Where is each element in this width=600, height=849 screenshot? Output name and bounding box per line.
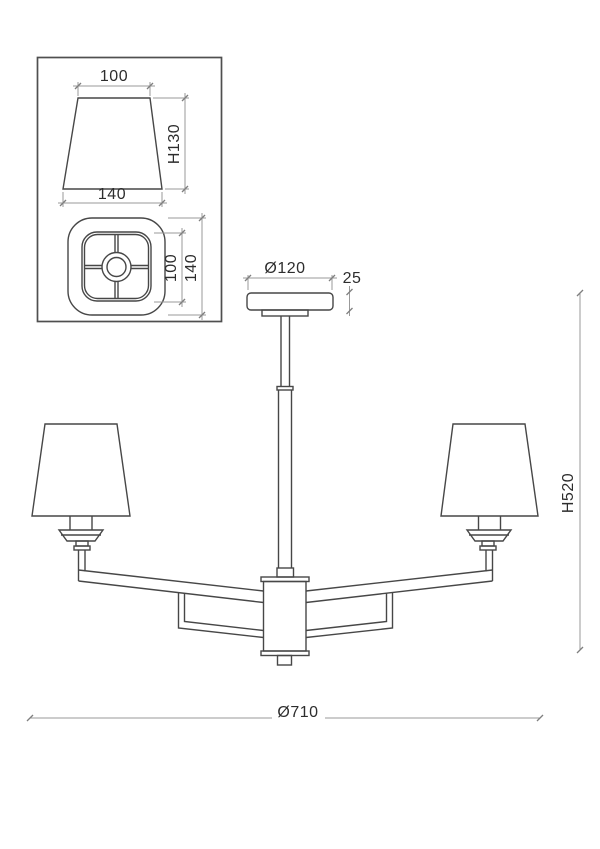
- right-arm-lower-frame-outer: [306, 593, 393, 638]
- right-neck-block: [482, 541, 494, 546]
- left-neck-block: [76, 541, 88, 546]
- stem-coupler: [277, 387, 293, 391]
- right-arm: [306, 570, 493, 638]
- right-light-fixture: [441, 424, 538, 581]
- dim-label-topview-inner: 100: [163, 254, 180, 282]
- right-arm-lower-frame-inner: [306, 594, 387, 631]
- left-shade: [32, 424, 130, 516]
- dim-label-overall-height: H520: [560, 473, 577, 513]
- shade-top-view-inner-ring-inner: [85, 235, 149, 299]
- bottom-finial: [278, 656, 292, 666]
- shade-top-view: [68, 218, 165, 315]
- left-arm: [79, 570, 264, 638]
- spider-spokes: [85, 235, 149, 299]
- socket-ring-inner: [107, 258, 126, 277]
- lighting-dimension-drawing: 100 H130 140: [0, 0, 600, 849]
- central-body: [261, 577, 309, 665]
- dim-overall-height: H520: [560, 290, 583, 653]
- shade-detail-inset: 100 H130 140: [38, 58, 222, 322]
- left-arm-lower-frame-inner: [185, 594, 264, 631]
- ceiling-canopy: [247, 293, 333, 310]
- dim-label-shade-bottom-width: 140: [98, 186, 126, 203]
- right-shade: [441, 424, 538, 516]
- dim-label-overall-diameter: Ø710: [277, 704, 318, 721]
- left-light-fixture: [32, 424, 130, 581]
- dim-label-topview-outer: 140: [183, 254, 200, 282]
- shade-top-view-inner-ring-outer: [82, 232, 151, 301]
- dim-shade-top-width: 100: [73, 68, 155, 96]
- technical-drawing-canvas: 100 H130 140: [0, 0, 600, 849]
- dim-label-shade-height: H130: [166, 124, 183, 164]
- dim-shade-height: H130: [153, 93, 189, 194]
- dim-label-shade-top-width: 100: [100, 68, 128, 85]
- dim-overall-diameter: Ø710: [27, 704, 543, 721]
- chandelier-main-view: Ø120 25 H520 Ø710: [27, 260, 583, 721]
- dim-canopy-diameter: Ø120: [243, 260, 337, 290]
- left-arm-lower-frame-outer: [179, 593, 264, 638]
- shade-front-view: [63, 98, 162, 189]
- canopy-plate: [262, 310, 308, 316]
- stem-collar: [277, 568, 294, 577]
- dim-topview-inner: 100: [154, 228, 186, 307]
- body-column: [264, 582, 307, 652]
- dim-canopy-height: 25: [343, 270, 362, 316]
- dim-label-canopy-diameter: Ø120: [264, 260, 305, 277]
- dim-label-canopy-height: 25: [343, 270, 362, 287]
- suspension-stem: [277, 316, 294, 577]
